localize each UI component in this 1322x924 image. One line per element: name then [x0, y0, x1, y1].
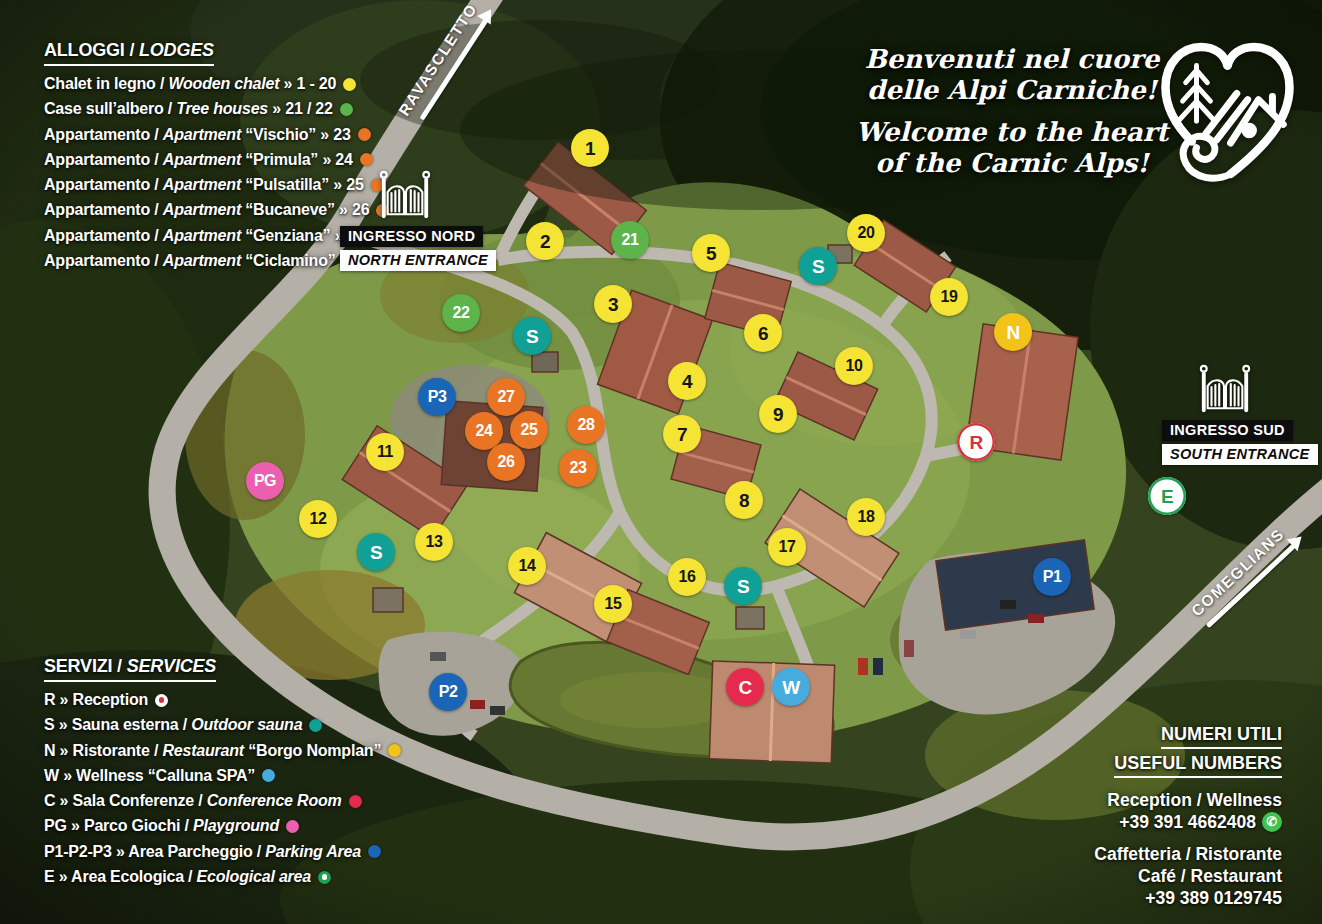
legend-item-label: W » Wellness “Calluna SPA” — [44, 767, 255, 785]
legend-color-dot — [155, 694, 168, 707]
legend-item-label: E » Area Ecologica / Ecological area — [44, 868, 311, 886]
legend-item: C » Sala Conferenze / Conference Room — [44, 792, 401, 810]
map-marker-9[interactable]: 9 — [759, 395, 797, 433]
numbers-text: Caffetteria / Ristorante — [1094, 843, 1282, 865]
legend-color-dot — [262, 769, 275, 782]
lodges-legend: ALLOGGI / LODGES Chalet in legno / Woode… — [44, 40, 390, 277]
numbers-text: Café / Restaurant — [1094, 865, 1282, 887]
map-marker-p3[interactable]: P3 — [418, 378, 456, 416]
legend-item-label: Appartamento / Apartment “Primula” » 24 — [44, 151, 353, 169]
legend-color-dot — [368, 845, 381, 858]
map-marker-2[interactable]: 2 — [526, 222, 564, 260]
legend-item-label: PG » Parco Giochi / Playground — [44, 817, 279, 835]
welcome-line-en-1: Welcome to the heart — [852, 117, 1172, 148]
map-marker-s[interactable]: S — [799, 247, 837, 285]
map-marker-p2[interactable]: P2 — [429, 673, 467, 711]
map-marker-s[interactable]: S — [724, 567, 762, 605]
entrance-north-it: INGRESSO NORD — [340, 226, 483, 247]
map-marker-26[interactable]: 26 — [487, 443, 525, 481]
map-marker-c[interactable]: C — [726, 668, 764, 706]
legend-item: Appartamento / Apartment “Genziana” » 27 — [44, 227, 390, 245]
numbers-text: Reception / Wellness — [1094, 789, 1282, 811]
legend-color-dot — [349, 795, 362, 808]
legend-item: W » Wellness “Calluna SPA” — [44, 767, 401, 785]
entrance-north-en: NORTH ENTRANCE — [340, 250, 496, 271]
legend-color-dot — [309, 719, 322, 732]
welcome-line-en-2: of the Carnic Alps! — [852, 148, 1172, 179]
map-marker-13[interactable]: 13 — [415, 523, 453, 561]
gate-icon — [374, 168, 436, 222]
legend-item: P1-P2-P3 » Area Parcheggio / Parking Are… — [44, 843, 401, 861]
map-marker-16[interactable]: 16 — [668, 558, 706, 596]
map-marker-3[interactable]: 3 — [594, 285, 632, 323]
legend-color-dot — [343, 78, 356, 91]
useful-numbers-title-en: USEFUL NUMBERS — [1114, 753, 1282, 778]
south-entrance-label: INGRESSO SUD SOUTH ENTRANCE — [1162, 362, 1288, 465]
legend-item: R » Reception — [44, 691, 401, 709]
legend-color-dot — [388, 744, 401, 757]
map-marker-25[interactable]: 25 — [510, 411, 548, 449]
map-marker-w[interactable]: W — [772, 668, 810, 706]
map-marker-7[interactable]: 7 — [663, 415, 701, 453]
useful-numbers-lines: Reception / Wellness+39 391 4662408✆Caff… — [1094, 789, 1282, 909]
legend-color-dot — [340, 103, 353, 116]
phone-number[interactable]: +39 389 0129745 — [1094, 887, 1282, 909]
map-marker-1[interactable]: 1 — [571, 129, 609, 167]
legend-item: Appartamento / Apartment “Vischio” » 23 — [44, 126, 390, 144]
map-marker-12[interactable]: 12 — [299, 500, 337, 538]
legend-color-dot — [358, 128, 371, 141]
phone-number[interactable]: +39 391 4662408✆ — [1094, 811, 1282, 833]
entrance-south-en: SOUTH ENTRANCE — [1162, 444, 1318, 465]
legend-item: Appartamento / Apartment “Pulsatilla” » … — [44, 176, 390, 194]
legend-item-label: Case sull’albero / Tree houses » 21 / 22 — [44, 100, 333, 118]
legend-item-label: Appartamento / Apartment “Bucaneve” » 26 — [44, 201, 369, 219]
services-legend-title: SERVIZI / SERVICES — [44, 656, 216, 682]
map-marker-15[interactable]: 15 — [594, 585, 632, 623]
resort-map: 1234567891011121314151617181920212223242… — [0, 0, 1322, 924]
map-marker-5[interactable]: 5 — [692, 234, 730, 272]
useful-numbers: NUMERI UTILI USEFUL NUMBERS Reception / … — [1094, 724, 1282, 909]
services-legend: SERVIZI / SERVICES R » ReceptionS » Saun… — [44, 656, 401, 893]
legend-color-dot — [318, 871, 331, 884]
lodges-legend-items: Chalet in legno / Wooden chalet » 1 - 20… — [44, 75, 390, 270]
legend-item: Appartamento / Apartment “Bucaneve” » 26 — [44, 201, 390, 219]
map-marker-21[interactable]: 21 — [611, 221, 649, 259]
legend-color-dot — [286, 820, 299, 833]
map-marker-6[interactable]: 6 — [744, 314, 782, 352]
welcome-line-it-1: Benvenuti nel cuore — [852, 44, 1172, 75]
legend-item-label: S » Sauna esterna / Outdoor sauna — [44, 716, 302, 734]
legend-item-label: R » Reception — [44, 691, 148, 709]
heart-logo — [1150, 28, 1305, 196]
legend-item-label: Appartamento / Apartment “Vischio” » 23 — [44, 126, 351, 144]
legend-item: S » Sauna esterna / Outdoor sauna — [44, 716, 401, 734]
map-marker-n[interactable]: N — [994, 313, 1032, 351]
gate-icon — [1194, 362, 1256, 416]
legend-item: Chalet in legno / Wooden chalet » 1 - 20 — [44, 75, 390, 93]
legend-item-label: N » Ristorante / Restaurant “Borgo Nompl… — [44, 742, 381, 760]
useful-numbers-title-it: NUMERI UTILI — [1161, 724, 1282, 749]
map-marker-4[interactable]: 4 — [668, 362, 706, 400]
legend-item: PG » Parco Giochi / Playground — [44, 817, 401, 835]
map-marker-23[interactable]: 23 — [559, 449, 597, 487]
legend-item: Appartamento / Apartment “Ciclamino” » 2… — [44, 252, 390, 270]
map-marker-r[interactable]: R — [957, 423, 995, 461]
legend-item-label: P1-P2-P3 » Area Parcheggio / Parking Are… — [44, 843, 361, 861]
map-marker-e[interactable]: E — [1148, 477, 1186, 515]
legend-item: E » Area Ecologica / Ecological area — [44, 868, 401, 886]
legend-item-label: Chalet in legno / Wooden chalet » 1 - 20 — [44, 75, 336, 93]
map-marker-pg[interactable]: PG — [246, 462, 284, 500]
map-marker-p1[interactable]: P1 — [1033, 558, 1071, 596]
map-marker-22[interactable]: 22 — [442, 294, 480, 332]
welcome-line-it-2: delle Alpi Carniche! — [852, 75, 1172, 106]
entrance-south-it: INGRESSO SUD — [1162, 420, 1293, 441]
legend-color-dot — [360, 153, 373, 166]
map-marker-11[interactable]: 11 — [366, 433, 404, 471]
legend-item-label: Appartamento / Apartment “Ciclamino” » 2… — [44, 252, 370, 270]
map-marker-17[interactable]: 17 — [768, 528, 806, 566]
whatsapp-icon[interactable]: ✆ — [1262, 812, 1282, 832]
map-marker-27[interactable]: 27 — [487, 378, 525, 416]
map-marker-10[interactable]: 10 — [835, 347, 873, 385]
map-marker-s[interactable]: S — [513, 317, 551, 355]
services-legend-items: R » ReceptionS » Sauna esterna / Outdoor… — [44, 691, 401, 886]
map-marker-28[interactable]: 28 — [567, 406, 605, 444]
legend-item-label: Appartamento / Apartment “Genziana” » 27 — [44, 227, 365, 245]
lodges-legend-title: ALLOGGI / LODGES — [44, 40, 214, 66]
map-marker-14[interactable]: 14 — [508, 547, 546, 585]
north-entrance-label: INGRESSO NORD NORTH ENTRANCE — [340, 168, 470, 271]
legend-item-label: C » Sala Conferenze / Conference Room — [44, 792, 342, 810]
legend-item: Appartamento / Apartment “Primula” » 24 — [44, 151, 390, 169]
map-marker-8[interactable]: 8 — [725, 481, 763, 519]
map-marker-20[interactable]: 20 — [847, 214, 885, 252]
map-marker-19[interactable]: 19 — [930, 278, 968, 316]
welcome-message: Benvenuti nel cuore delle Alpi Carniche!… — [852, 44, 1172, 179]
legend-item: N » Ristorante / Restaurant “Borgo Nompl… — [44, 742, 401, 760]
map-marker-s[interactable]: S — [357, 533, 395, 571]
legend-item-label: Appartamento / Apartment “Pulsatilla” » … — [44, 176, 364, 194]
map-marker-18[interactable]: 18 — [847, 498, 885, 536]
legend-item: Case sull’albero / Tree houses » 21 / 22 — [44, 100, 390, 118]
